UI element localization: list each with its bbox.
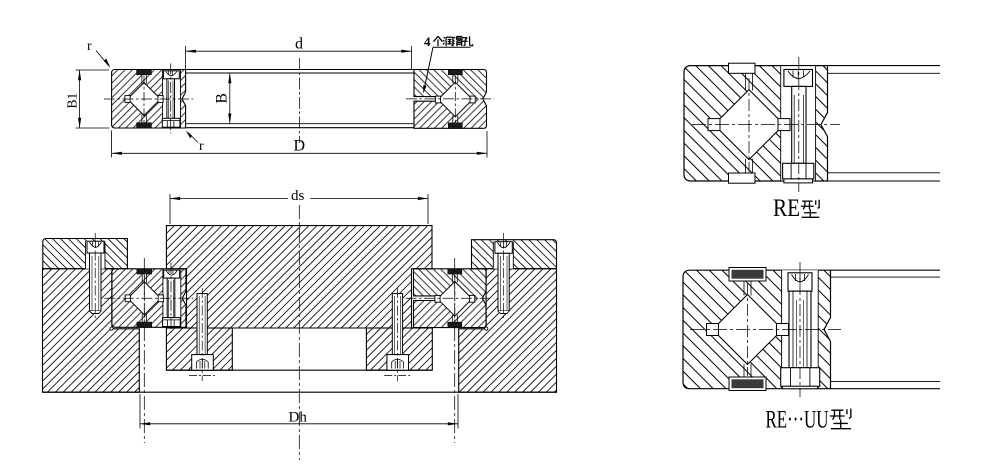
svg-text:ds: ds bbox=[291, 188, 305, 204]
svg-text:RE···UU: RE···UU bbox=[766, 407, 829, 434]
svg-text:D: D bbox=[294, 138, 306, 155]
svg-text:r: r bbox=[199, 139, 204, 154]
svg-text:d: d bbox=[295, 36, 303, 53]
svg-text:Dh: Dh bbox=[289, 410, 308, 426]
svg-text:B1: B1 bbox=[65, 93, 80, 109]
svg-text:RE: RE bbox=[773, 195, 800, 222]
svg-text:r: r bbox=[87, 39, 92, 54]
svg-text:B: B bbox=[214, 93, 231, 103]
svg-text:4: 4 bbox=[424, 34, 431, 49]
